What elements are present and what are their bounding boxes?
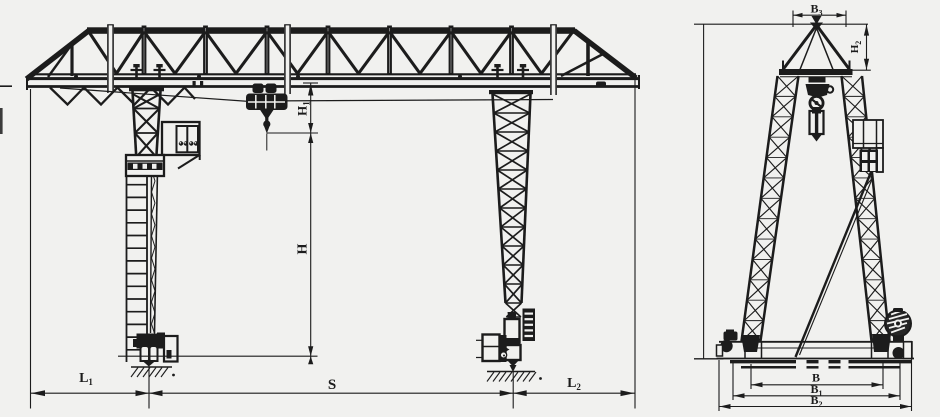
- svg-text:H: H: [296, 243, 311, 254]
- svg-text:S: S: [328, 377, 336, 393]
